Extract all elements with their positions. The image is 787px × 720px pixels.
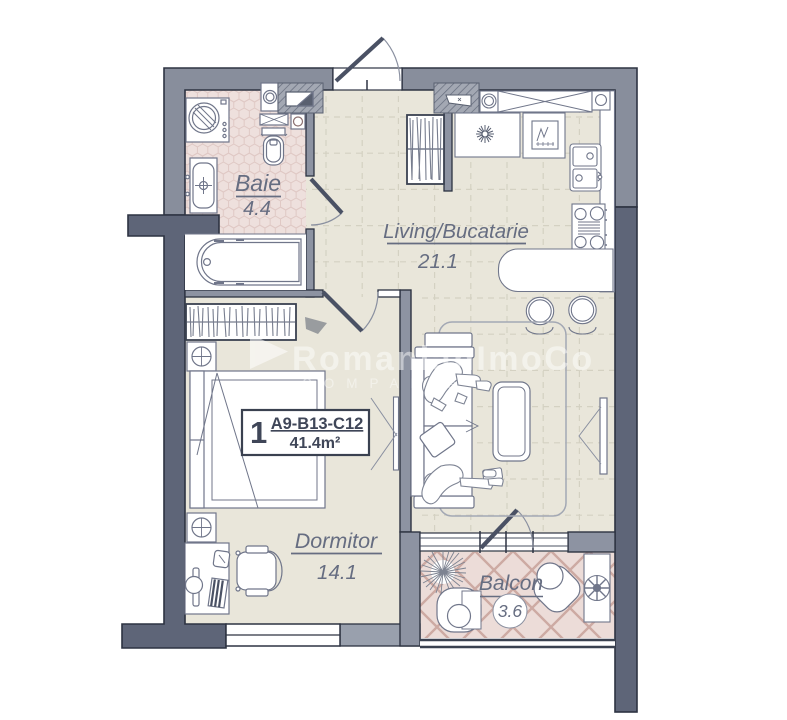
svg-text:RomanianImoCo: RomanianImoCo (292, 340, 595, 378)
svg-text:21.1: 21.1 (417, 250, 458, 273)
svg-text:4.4: 4.4 (243, 198, 271, 220)
svg-text:A9-B13-C12: A9-B13-C12 (271, 415, 364, 433)
svg-text:Dormitor: Dormitor (295, 529, 378, 553)
svg-text:41.4m²: 41.4m² (290, 435, 341, 452)
svg-text:Balcon: Balcon (479, 572, 543, 595)
svg-text:COMPANIA: COMPANIA (302, 376, 469, 391)
svg-text:14.1: 14.1 (317, 561, 357, 584)
svg-text:3.6: 3.6 (498, 601, 523, 621)
svg-text:1: 1 (250, 415, 267, 450)
svg-text:Living/Bucatarie: Living/Bucatarie (383, 220, 529, 243)
svg-text:Baie: Baie (235, 170, 281, 196)
